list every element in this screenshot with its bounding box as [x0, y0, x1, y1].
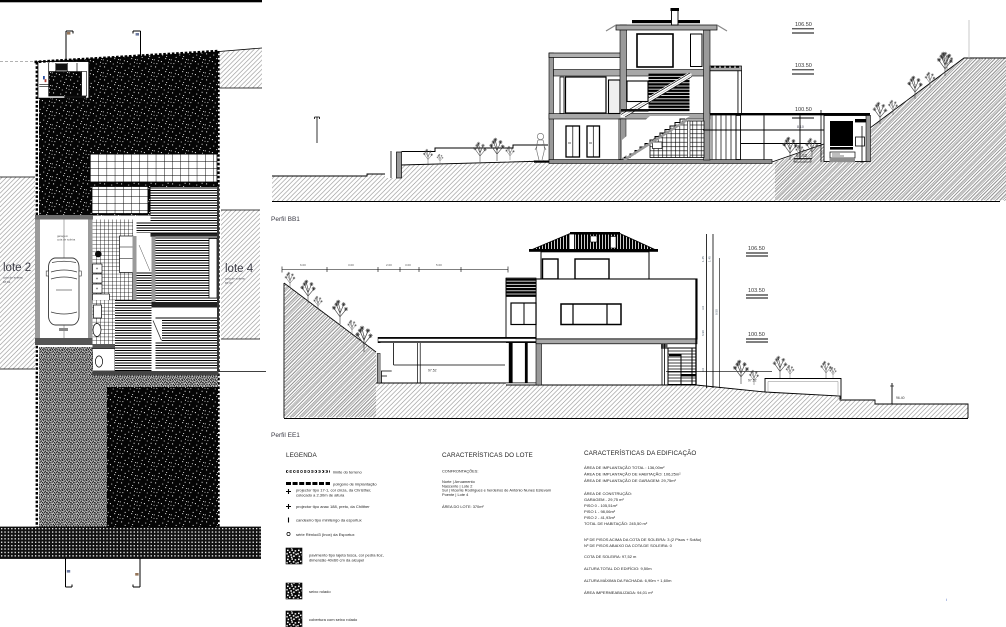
svg-text:série Rénlod3 (Inox) da Esport: série Rénlod3 (Inox) da Esportux: [296, 532, 354, 537]
svg-text:106.50: 106.50: [748, 246, 765, 252]
svg-text:103.50: 103.50: [795, 63, 812, 69]
svg-text:ÁREA DE IMPLANTAÇÃO DE GARAGEM: ÁREA DE IMPLANTAÇÃO DE GARAGEM: 29,75m²: [584, 478, 677, 483]
svg-text:Nº DE PISOS ACIMA DA COTA DE S: Nº DE PISOS ACIMA DA COTA DE SOLEIRA: 3 …: [584, 537, 702, 542]
svg-text:ALTURA TOTAL DO EDIFÍCIO: 9,50: ALTURA TOTAL DO EDIFÍCIO: 9,50m: [584, 566, 652, 571]
svg-text:polígono de implantação: polígono de implantação: [333, 482, 377, 487]
svg-text:cota de soleira: cota de soleira: [225, 277, 245, 281]
svg-text:PISO 0 - 105,51m²: PISO 0 - 105,51m²: [584, 503, 618, 508]
svg-text:lote 4: lote 4: [225, 263, 254, 275]
svg-text:ÁREA DE IMPLANTAÇÃO TOTAL : 13: ÁREA DE IMPLANTAÇÃO TOTAL : 136,00m²: [584, 465, 665, 470]
svg-text:100.50: 100.50: [795, 107, 812, 113]
svg-text:97,37: 97,37: [225, 281, 233, 285]
svg-text:103.50: 103.50: [748, 288, 765, 294]
svg-text:9.50: 9.50: [715, 309, 719, 315]
svg-text:97,61: 97,61: [3, 280, 11, 284]
svg-text:Poente | Lote 4: Poente | Lote 4: [442, 492, 469, 497]
svg-text:97.52: 97.52: [748, 379, 757, 383]
svg-text:TOTAL DE HABITAÇÃO: 245,50 m²: TOTAL DE HABITAÇÃO: 245,50 m²: [584, 521, 648, 526]
svg-text:GARAGEM - 29,75 m²: GARAGEM - 29,75 m²: [584, 497, 624, 502]
svg-text:LEGENDA: LEGENDA: [286, 452, 317, 459]
svg-text:i: i: [946, 597, 947, 602]
svg-text:Perfil EE1: Perfil EE1: [271, 432, 300, 439]
svg-text:Nº DE PISOS ABAIXO DA COTA DE: Nº DE PISOS ABAIXO DA COTA DE SOLEIRA: 0: [584, 543, 673, 548]
svg-text:3.0: 3.0: [701, 305, 705, 310]
svg-text:100.50: 100.50: [748, 332, 765, 338]
svg-text:3.00: 3.00: [348, 263, 354, 267]
svg-text:colocado a 2.30m de altura: colocado a 2.30m de altura: [296, 493, 345, 498]
svg-text:PISO 2 - 41,93m²: PISO 2 - 41,93m²: [584, 515, 616, 520]
svg-text:dimensão 40x60 cm da alcupel: dimensão 40x60 cm da alcupel: [309, 558, 364, 563]
svg-text:6.90: 6.90: [701, 330, 705, 336]
svg-text:ÁREA DE CONSTRUÇÃO:: ÁREA DE CONSTRUÇÃO:: [584, 491, 632, 496]
svg-text:limite do terreno: limite do terreno: [333, 470, 362, 475]
svg-text:seixo rolado: seixo rolado: [309, 589, 331, 594]
svg-text:candeeiro tipo minitengo da es: candeeiro tipo minitengo da esportux: [296, 518, 362, 523]
svg-text:cota de soleira: cota de soleira: [3, 276, 23, 280]
svg-text:1.45: 1.45: [701, 256, 705, 262]
svg-text:Perfil BB1: Perfil BB1: [271, 216, 300, 223]
svg-text:2.00: 2.00: [386, 263, 392, 267]
svg-text:97.52: 97.52: [428, 369, 437, 373]
svg-text:106.50: 106.50: [795, 22, 812, 28]
svg-text:ÁREA DO LOTE: 370m²: ÁREA DO LOTE: 370m²: [442, 504, 484, 509]
svg-text:3.00: 3.00: [405, 263, 411, 267]
svg-text:cota de soleira: cota de soleira: [57, 238, 76, 242]
svg-text:COTA DE SOLEIRA: 97,52 m: COTA DE SOLEIRA: 97,52 m: [584, 554, 637, 559]
svg-text:97.52: 97.52: [796, 153, 808, 158]
svg-text:CARACTERÍSTICAS DA EDIFICAÇÃO: CARACTERÍSTICAS DA EDIFICAÇÃO: [584, 448, 696, 457]
svg-text:projector tipo anac 188, preto: projector tipo anac 188, preto, da Chilt…: [296, 504, 370, 509]
svg-text:CARACTERÍSTICAS DO LOTE: CARACTERÍSTICAS DO LOTE: [442, 450, 533, 459]
svg-text:lote 2: lote 2: [3, 262, 31, 274]
svg-text:cobertura com seixo rolado: cobertura com seixo rolado: [309, 617, 358, 622]
svg-text:8.10: 8.10: [797, 125, 804, 129]
svg-text:CONFRONTAÇÕES:: CONFRONTAÇÕES:: [442, 469, 478, 474]
svg-text:1.45: 1.45: [708, 256, 712, 262]
svg-text:PISO 1 - 98,06m²: PISO 1 - 98,06m²: [584, 509, 616, 514]
svg-text:5.00: 5.00: [436, 263, 442, 267]
svg-text:ALTURA MÁXIMA DA FACHADA: 6,90: ALTURA MÁXIMA DA FACHADA: 6,90m + 1,60m: [584, 578, 672, 583]
svg-text:ÁREA DE IMPLANTAÇÃO DE HABITAÇ: ÁREA DE IMPLANTAÇÃO DE HABITAÇÃO: 106,25…: [584, 472, 681, 477]
svg-text:6.00: 6.00: [300, 263, 306, 267]
svg-text:96.40: 96.40: [896, 396, 905, 400]
svg-text:ÁREA IMPERMEABILIZADA: 94,01 m: ÁREA IMPERMEABILIZADA: 94,01 m²: [584, 590, 654, 595]
